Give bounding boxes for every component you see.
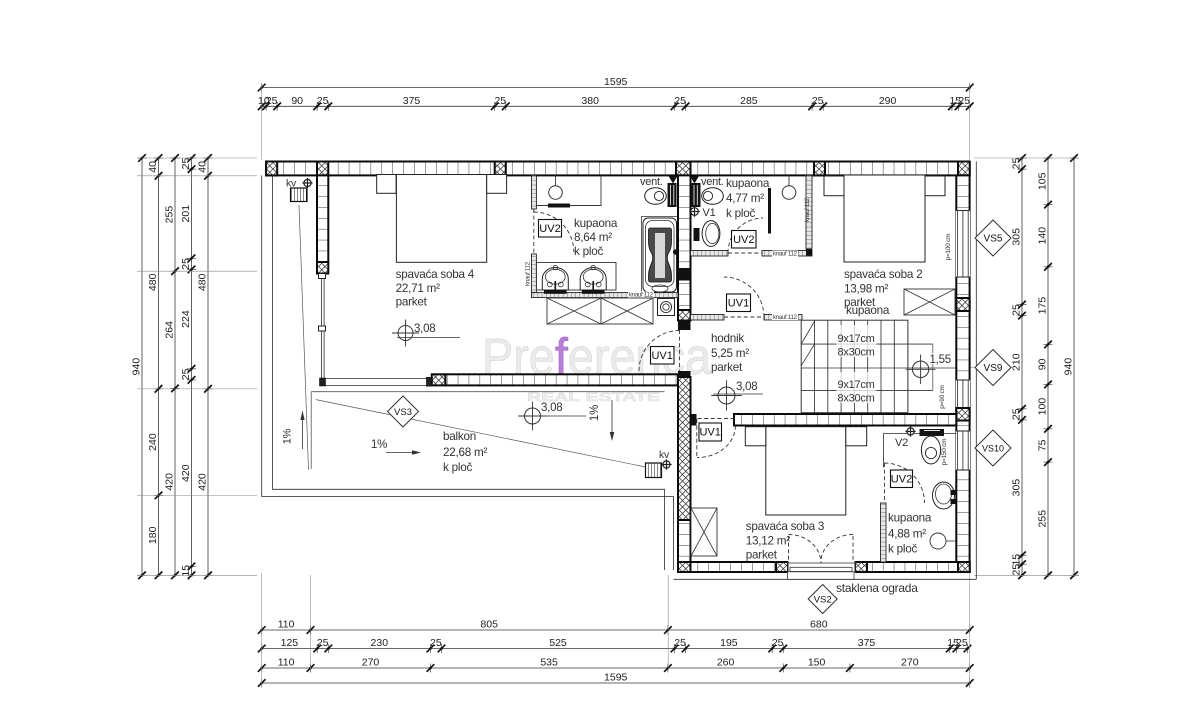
svg-text:1595: 1595 [604,76,628,88]
svg-text:k ploč: k ploč [888,543,917,556]
svg-text:380: 380 [581,95,599,107]
svg-text:hodnik: hodnik [711,332,744,345]
svg-text:UV2: UV2 [539,223,560,235]
svg-text:VS9: VS9 [984,363,1003,374]
svg-text:UV1: UV1 [699,427,720,439]
svg-text:5,25 m²: 5,25 m² [711,347,749,360]
svg-text:3,08: 3,08 [736,381,757,393]
svg-text:525: 525 [549,637,567,649]
svg-text:535: 535 [540,657,558,669]
svg-text:1%: 1% [589,405,601,421]
svg-text:140: 140 [1037,227,1049,245]
svg-text:201: 201 [180,205,192,223]
svg-text:4,77 m²: 4,77 m² [726,192,764,205]
svg-text:UV2: UV2 [891,473,912,485]
svg-text:25: 25 [180,258,192,270]
svg-text:1,55: 1,55 [930,354,951,366]
svg-text:480: 480 [147,273,159,291]
svg-text:375: 375 [403,95,421,107]
svg-text:224: 224 [180,310,192,328]
svg-text:13,12 m²: 13,12 m² [746,535,790,548]
svg-text:knauf 112: knauf 112 [805,197,811,222]
svg-text:100: 100 [1037,398,1049,416]
svg-text:V1: V1 [703,207,716,219]
svg-text:VS10: VS10 [982,444,1004,454]
svg-text:420: 420 [164,473,176,491]
svg-text:kv: kv [659,449,670,461]
svg-text:260: 260 [717,657,735,669]
svg-text:25: 25 [180,158,192,170]
svg-text:805: 805 [480,619,498,631]
svg-text:3,08: 3,08 [541,402,562,414]
svg-text:VS2: VS2 [814,595,832,606]
svg-text:480: 480 [197,273,209,291]
svg-text:420: 420 [180,464,192,482]
svg-text:15: 15 [180,565,192,577]
svg-text:25: 25 [956,637,968,649]
svg-text:25: 25 [180,368,192,380]
svg-text:110: 110 [278,619,295,631]
svg-text:parket: parket [711,361,743,374]
svg-text:spavaća soba 3: spavaća soba 3 [746,520,824,533]
svg-text:k ploč: k ploč [726,207,755,220]
svg-text:25: 25 [674,637,686,649]
svg-text:k ploč: k ploč [574,245,603,258]
svg-text:knauf 112: knauf 112 [629,293,654,299]
svg-text:13,98 m²: 13,98 m² [844,283,888,296]
svg-text:25: 25 [958,95,970,107]
svg-text:255: 255 [164,206,176,224]
svg-text:25: 25 [1011,158,1023,170]
svg-text:230: 230 [371,637,389,649]
svg-text:1595: 1595 [604,672,628,684]
svg-text:UV1: UV1 [728,297,749,309]
svg-text:balkon: balkon [443,430,476,443]
svg-text:290: 290 [879,95,897,107]
svg-text:25: 25 [317,637,329,649]
svg-text:spavaća soba 4: spavaća soba 4 [396,268,475,281]
svg-text:vent.: vent. [640,176,663,188]
svg-text:125: 125 [281,637,299,649]
svg-text:195: 195 [720,637,738,649]
svg-text:spavaća soba 2: spavaća soba 2 [844,268,922,281]
svg-text:25: 25 [266,95,278,107]
svg-text:270: 270 [901,657,919,669]
svg-text:25: 25 [1011,564,1023,576]
svg-text:25: 25 [494,95,506,107]
svg-text:75: 75 [1037,439,1049,451]
svg-text:4,88 m²: 4,88 m² [888,528,926,541]
svg-text:270: 270 [362,657,380,669]
svg-text:vent.: vent. [701,176,724,188]
svg-text:k ploč: k ploč [443,461,472,474]
svg-text:40: 40 [197,161,209,173]
svg-text:UV2: UV2 [733,234,754,246]
svg-text:22,68 m²: 22,68 m² [443,446,487,459]
svg-text:110: 110 [278,657,295,669]
svg-text:375: 375 [858,637,876,649]
svg-text:kupaona: kupaona [846,304,890,317]
svg-text:8x30cm: 8x30cm [838,393,875,405]
svg-text:15: 15 [1011,554,1023,566]
svg-text:25: 25 [317,95,329,107]
svg-text:parket: parket [396,296,428,309]
svg-text:9x17cm: 9x17cm [838,379,875,391]
svg-text:40: 40 [147,161,159,173]
svg-text:264: 264 [164,321,176,339]
svg-text:UV1: UV1 [651,350,672,362]
svg-text:940: 940 [131,358,143,376]
svg-text:p=90 cm: p=90 cm [939,385,946,408]
svg-text:90: 90 [1037,358,1049,370]
svg-text:p=150 cm: p=150 cm [941,439,948,466]
svg-text:knauf 112: knauf 112 [526,261,532,286]
svg-text:knauf 112: knauf 112 [773,252,798,258]
svg-text:25: 25 [674,95,686,107]
svg-text:VS3: VS3 [394,407,412,418]
svg-text:25: 25 [772,637,784,649]
svg-text:25: 25 [812,95,824,107]
svg-text:105: 105 [1037,172,1049,190]
svg-text:1%: 1% [371,439,387,451]
svg-text:240: 240 [147,433,159,451]
svg-text:parket: parket [746,549,778,562]
svg-text:kupaona: kupaona [888,512,932,525]
svg-text:22,71 m²: 22,71 m² [396,282,440,295]
svg-text:25: 25 [1011,304,1023,316]
svg-text:25: 25 [430,637,442,649]
svg-text:90: 90 [291,95,303,107]
svg-text:8,64 m²: 8,64 m² [574,231,612,244]
svg-text:680: 680 [810,619,828,631]
svg-text:p=100 cm: p=100 cm [945,234,952,261]
svg-text:staklena ograda: staklena ograda [836,581,918,595]
svg-text:175: 175 [1037,297,1049,315]
svg-text:305: 305 [1011,479,1023,497]
svg-text:knauf 112: knauf 112 [773,315,798,321]
svg-text:285: 285 [740,95,758,107]
svg-text:VS5: VS5 [984,234,1003,245]
svg-text:1%: 1% [282,428,294,444]
svg-text:305: 305 [1011,228,1023,246]
svg-text:940: 940 [1063,358,1075,376]
svg-text:3,08: 3,08 [414,323,435,335]
svg-text:210: 210 [1011,353,1023,371]
svg-text:V2: V2 [895,437,908,449]
svg-text:180: 180 [147,526,159,544]
svg-text:420: 420 [197,473,209,491]
svg-text:8x30cm: 8x30cm [838,346,875,358]
svg-text:kupaona: kupaona [726,177,770,190]
svg-text:kupaona: kupaona [574,217,618,230]
svg-text:9x17cm: 9x17cm [838,333,875,345]
svg-text:150: 150 [808,657,826,669]
svg-text:25: 25 [1011,408,1023,420]
svg-text:255: 255 [1037,510,1049,528]
